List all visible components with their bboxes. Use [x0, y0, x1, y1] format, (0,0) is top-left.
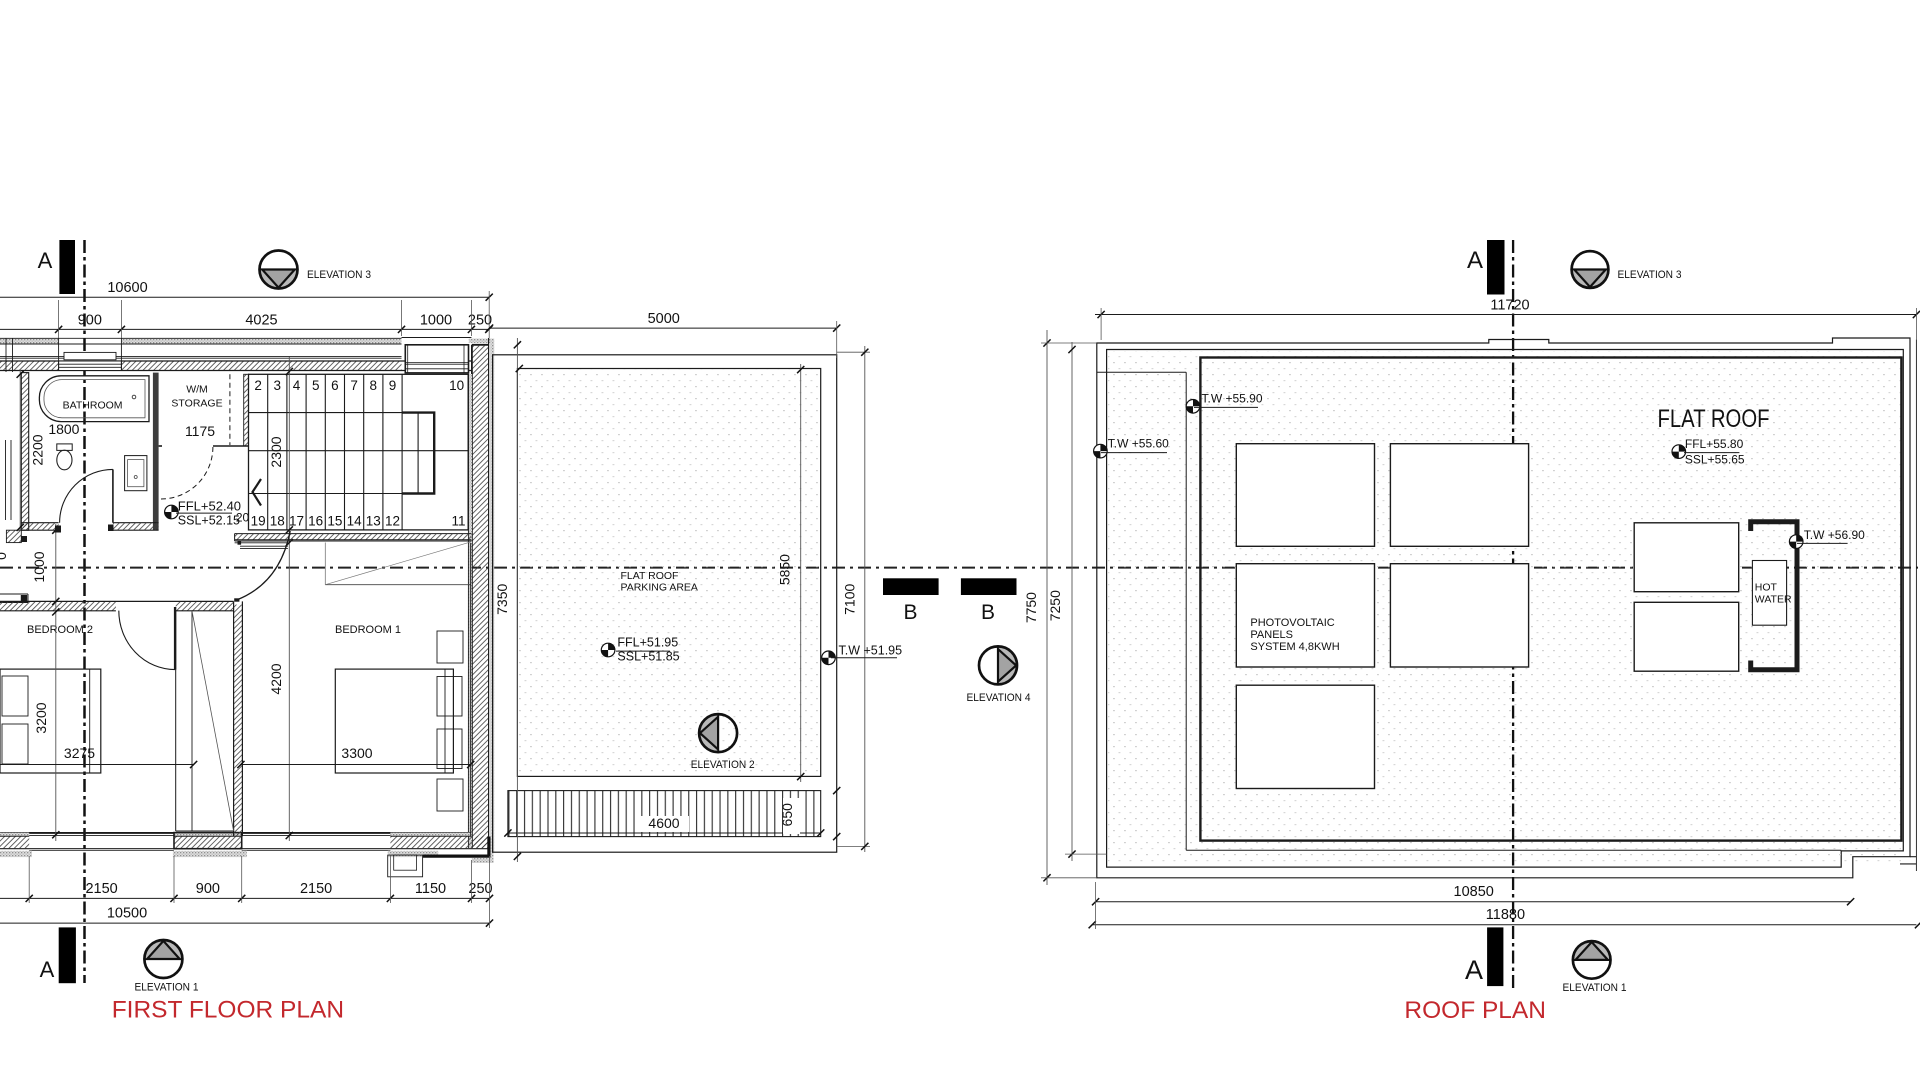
svg-text:1000: 1000 — [31, 551, 47, 582]
svg-text:15: 15 — [327, 514, 342, 529]
svg-text:5850: 5850 — [777, 554, 793, 585]
svg-text:7350: 7350 — [494, 584, 510, 615]
svg-text:3275: 3275 — [64, 745, 95, 761]
svg-text:FFL+55.80: FFL+55.80 — [1685, 437, 1744, 451]
svg-text:A: A — [1467, 247, 1483, 274]
svg-text:9: 9 — [389, 378, 397, 393]
svg-text:11880: 11880 — [1486, 907, 1525, 923]
svg-text:A: A — [40, 957, 55, 982]
svg-text:ELEVATION 2: ELEVATION 2 — [691, 759, 755, 771]
svg-text:10850: 10850 — [1454, 884, 1494, 900]
svg-text:PANELS: PANELS — [1250, 629, 1293, 641]
svg-text:B: B — [981, 601, 995, 624]
svg-text:11: 11 — [451, 514, 465, 529]
svg-text:7100: 7100 — [841, 584, 857, 615]
svg-text:ELEVATION 3: ELEVATION 3 — [1618, 269, 1682, 281]
svg-text:T.W +51.95: T.W +51.95 — [839, 644, 903, 658]
svg-text:2150: 2150 — [300, 881, 332, 897]
svg-text:10600: 10600 — [107, 280, 147, 296]
svg-text:W/M: W/M — [186, 384, 208, 396]
svg-text:650: 650 — [779, 803, 795, 827]
svg-text:20: 20 — [236, 511, 250, 525]
svg-text:1800: 1800 — [48, 421, 79, 437]
svg-text:BATHROOM: BATHROOM — [63, 400, 123, 412]
svg-text:1150: 1150 — [415, 881, 446, 897]
svg-text:6: 6 — [331, 378, 339, 393]
svg-text:2: 2 — [254, 378, 262, 393]
svg-text:3300: 3300 — [341, 745, 372, 761]
svg-text:18: 18 — [270, 514, 285, 529]
svg-text:13: 13 — [366, 514, 381, 529]
svg-text:3: 3 — [274, 378, 282, 393]
svg-text:4: 4 — [293, 378, 301, 393]
svg-text:A: A — [38, 248, 53, 273]
svg-text:BEDROOM 1: BEDROOM 1 — [335, 624, 401, 636]
svg-text:SSL+52.15: SSL+52.15 — [178, 514, 240, 528]
svg-text:10500: 10500 — [107, 906, 147, 922]
svg-text:FLAT ROOF: FLAT ROOF — [1658, 405, 1770, 433]
svg-text:250: 250 — [468, 881, 492, 897]
svg-text:2300: 2300 — [268, 436, 284, 467]
svg-text:4200: 4200 — [268, 663, 284, 694]
svg-text:HOT: HOT — [1755, 581, 1778, 593]
svg-text:5: 5 — [312, 378, 320, 393]
svg-text:8: 8 — [370, 378, 378, 393]
svg-text:16: 16 — [308, 514, 323, 529]
svg-text:3200: 3200 — [33, 702, 49, 733]
svg-text:FIRST FLOOR PLAN: FIRST FLOOR PLAN — [112, 996, 344, 1023]
svg-text:SSL+55.65: SSL+55.65 — [1685, 453, 1745, 467]
svg-text:900: 900 — [196, 881, 220, 897]
svg-text:PHOTOVOLTAIC: PHOTOVOLTAIC — [1250, 617, 1334, 629]
svg-text:SSL+51.85: SSL+51.85 — [617, 649, 679, 663]
svg-text:1000: 1000 — [420, 312, 452, 328]
svg-text:FFL+51.95: FFL+51.95 — [617, 635, 678, 649]
svg-text:B: B — [903, 601, 917, 624]
svg-text:ROOF PLAN: ROOF PLAN — [1404, 997, 1546, 1024]
svg-text:7: 7 — [350, 378, 358, 393]
svg-text:0: 0 — [0, 552, 9, 560]
svg-text:900: 900 — [78, 312, 102, 328]
svg-text:7250: 7250 — [1047, 590, 1063, 621]
svg-text:ELEVATION 1: ELEVATION 1 — [1563, 982, 1627, 994]
svg-text:5000: 5000 — [648, 311, 680, 327]
svg-text:14: 14 — [347, 514, 363, 529]
svg-text:4025: 4025 — [245, 312, 277, 328]
svg-text:BEDROOM 2: BEDROOM 2 — [27, 624, 93, 636]
svg-text:11720: 11720 — [1490, 298, 1529, 314]
svg-text:2200: 2200 — [30, 434, 46, 465]
svg-text:12: 12 — [385, 514, 400, 529]
svg-text:2150: 2150 — [85, 881, 117, 897]
svg-text:PARKING AREA: PARKING AREA — [621, 582, 698, 594]
svg-text:T.W +56.90: T.W +56.90 — [1804, 528, 1865, 542]
svg-text:A: A — [1465, 955, 1483, 985]
svg-text:7750: 7750 — [1023, 592, 1039, 623]
svg-text:WATER: WATER — [1755, 593, 1792, 605]
svg-text:10: 10 — [449, 378, 464, 393]
svg-text:ELEVATION 4: ELEVATION 4 — [967, 692, 1031, 704]
svg-text:4600: 4600 — [648, 815, 679, 831]
svg-text:ELEVATION 3: ELEVATION 3 — [307, 269, 371, 281]
svg-text:FLAT ROOF: FLAT ROOF — [621, 570, 679, 582]
svg-text:SYSTEM 4,8KWH: SYSTEM 4,8KWH — [1250, 641, 1339, 653]
svg-text:17: 17 — [289, 514, 304, 529]
svg-text:19: 19 — [251, 514, 266, 529]
svg-text:T.W +55.60: T.W +55.60 — [1108, 436, 1169, 450]
svg-text:STORAGE: STORAGE — [171, 398, 222, 410]
svg-text:ELEVATION 1: ELEVATION 1 — [135, 981, 199, 993]
svg-text:FFL+52.40: FFL+52.40 — [178, 499, 241, 514]
svg-text:1175: 1175 — [185, 423, 215, 439]
svg-text:T.W +55.90: T.W +55.90 — [1202, 392, 1263, 406]
